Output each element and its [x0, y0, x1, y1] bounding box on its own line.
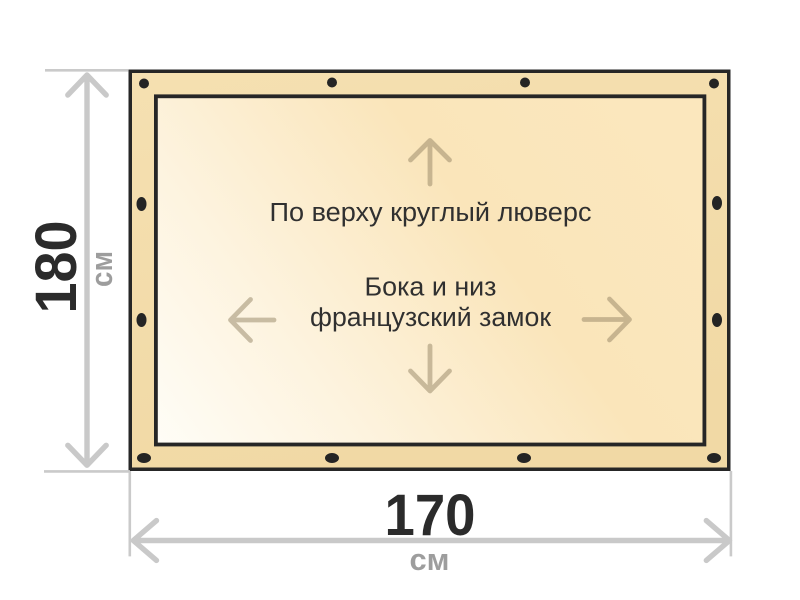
svg-text:см: см	[410, 542, 450, 577]
svg-text:французский замок: французский замок	[310, 304, 552, 332]
svg-text:По верху круглый люверс: По верху круглый люверс	[270, 199, 592, 227]
svg-text:см: см	[84, 251, 119, 287]
svg-text:180: 180	[24, 221, 89, 314]
svg-text:Бока и низ: Бока и низ	[365, 274, 497, 302]
svg-text:170: 170	[385, 483, 476, 548]
